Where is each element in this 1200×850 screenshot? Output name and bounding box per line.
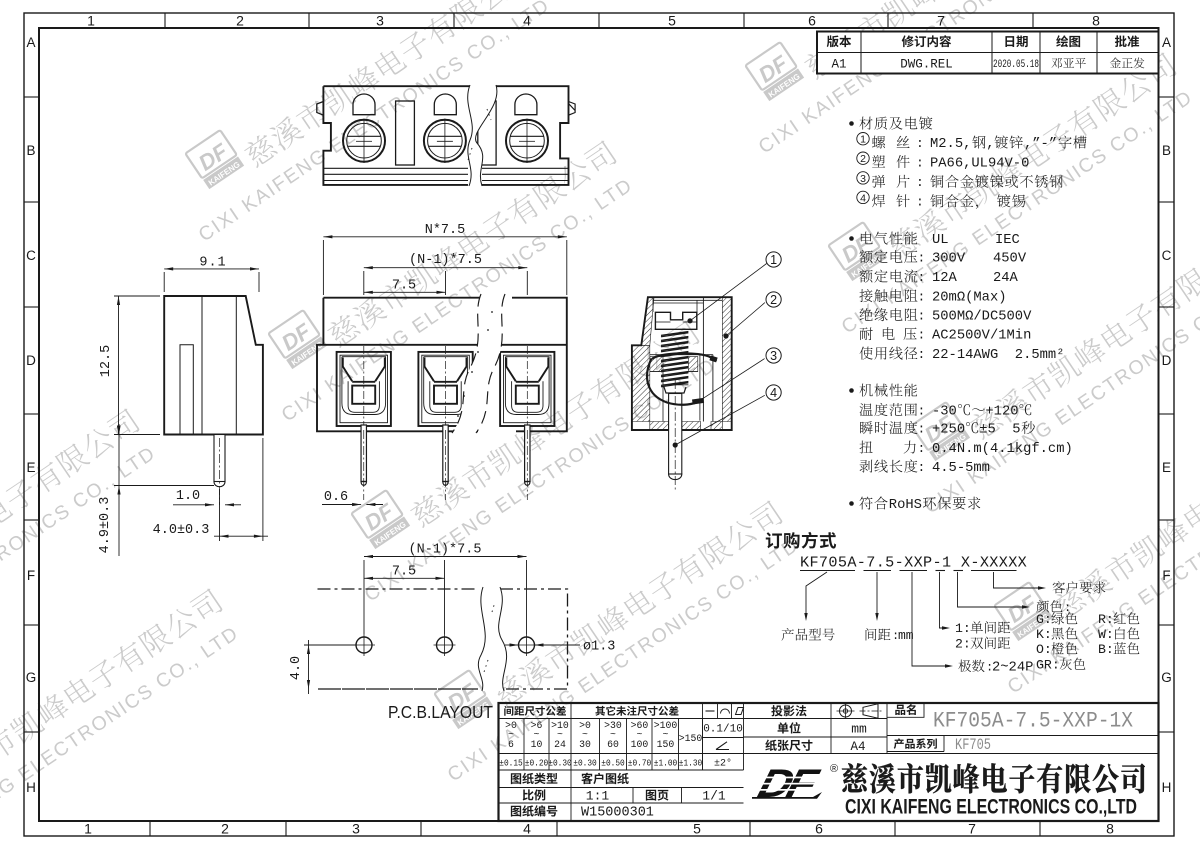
svg-text:H: H — [1162, 780, 1172, 795]
svg-text::: : — [918, 290, 926, 305]
svg-text:F: F — [1162, 568, 1170, 583]
svg-text:30: 30 — [579, 739, 591, 750]
svg-text:0.1/10: 0.1/10 — [703, 724, 743, 736]
svg-text:G:: G: — [1036, 612, 1052, 627]
svg-text:,”-”: ,”-” — [1024, 136, 1057, 152]
svg-text:E: E — [1162, 460, 1171, 475]
svg-text:mm: mm — [898, 628, 914, 643]
svg-text:±1.00: ±1.00 — [654, 757, 678, 768]
svg-text:ø1.3: ø1.3 — [583, 640, 615, 655]
svg-text:+120: +120 — [985, 405, 1018, 420]
svg-text:10: 10 — [531, 739, 543, 750]
svg-text:1:1: 1:1 — [586, 788, 610, 803]
svg-text:7: 7 — [968, 821, 976, 837]
svg-text:±0.30: ±0.30 — [573, 757, 597, 768]
svg-text:±1.30: ±1.30 — [679, 757, 703, 768]
svg-text:1: 1 — [87, 13, 95, 29]
svg-text:6: 6 — [808, 13, 816, 29]
svg-text:7.5: 7.5 — [392, 565, 416, 580]
svg-text:±5 5: ±5 5 — [979, 423, 1020, 438]
svg-text:DWG.REL: DWG.REL — [900, 58, 953, 72]
svg-text:4: 4 — [770, 386, 777, 400]
svg-text:-30: -30 — [932, 405, 957, 420]
svg-text:O:: O: — [1036, 642, 1052, 657]
svg-text::: : — [918, 404, 926, 419]
svg-text:±0.70: ±0.70 — [628, 757, 652, 768]
svg-text:±0.20: ±0.20 — [525, 757, 549, 768]
svg-text:4: 4 — [523, 13, 531, 29]
svg-text:A1: A1 — [831, 58, 846, 72]
svg-text:G: G — [1161, 670, 1172, 685]
svg-text:300V: 300V — [932, 252, 966, 267]
svg-text:H: H — [26, 780, 36, 795]
svg-text:P.C.B.LAYOUT: P.C.B.LAYOUT — [388, 702, 493, 722]
svg-text::: : — [918, 270, 926, 285]
svg-text:2: 2 — [221, 821, 229, 837]
svg-text::: : — [918, 347, 926, 362]
svg-text:®: ® — [830, 763, 838, 775]
svg-text:1: 1 — [84, 821, 92, 837]
svg-text:E: E — [26, 460, 35, 475]
svg-text:7.5: 7.5 — [392, 279, 416, 294]
svg-text::: : — [918, 328, 926, 343]
svg-text:D: D — [1162, 353, 1172, 368]
svg-text:0.6: 0.6 — [324, 490, 348, 505]
svg-text:2:: 2: — [955, 637, 971, 652]
svg-text:9.1: 9.1 — [199, 256, 226, 271]
svg-text:R:: R: — [1098, 612, 1114, 627]
svg-text::: : — [918, 441, 926, 456]
svg-text:A4: A4 — [850, 740, 865, 754]
svg-text:>150: >150 — [679, 733, 703, 744]
svg-text:2~24P: 2~24P — [992, 661, 1033, 676]
svg-text:5: 5 — [668, 13, 676, 29]
svg-text:1: 1 — [770, 253, 777, 267]
svg-text:150: 150 — [657, 739, 675, 750]
svg-text:K:: K: — [1036, 627, 1052, 642]
svg-text:RoHS: RoHS — [889, 498, 922, 513]
svg-text:4.0±0.3: 4.0±0.3 — [153, 523, 210, 538]
svg-text:7: 7 — [937, 13, 945, 29]
svg-text:+250: +250 — [932, 423, 965, 438]
svg-text:3: 3 — [860, 173, 866, 185]
svg-text:8: 8 — [1092, 13, 1100, 29]
svg-text:8: 8 — [1106, 821, 1114, 837]
svg-text:mm: mm — [851, 722, 867, 737]
svg-text:4.0: 4.0 — [289, 656, 304, 680]
svg-text:1/1: 1/1 — [702, 788, 726, 803]
svg-text:B: B — [26, 143, 35, 158]
svg-text:1.0: 1.0 — [176, 489, 200, 504]
svg-text:3: 3 — [376, 13, 384, 29]
svg-text:(N-1)*7.5: (N-1)*7.5 — [409, 253, 482, 268]
svg-text::: : — [918, 309, 926, 324]
svg-text:IEC: IEC — [995, 233, 1020, 248]
svg-text:W:: W: — [1098, 627, 1114, 642]
svg-text::: : — [916, 195, 924, 210]
svg-text:2: 2 — [770, 293, 777, 307]
svg-text:PA66,UL94V-0: PA66,UL94V-0 — [930, 157, 1029, 172]
svg-text:UL: UL — [932, 233, 949, 248]
svg-text:4: 4 — [860, 192, 866, 204]
svg-text:D: D — [26, 353, 36, 368]
svg-text:2020.05.18: 2020.05.18 — [993, 59, 1039, 71]
svg-text:450V: 450V — [993, 252, 1027, 267]
svg-text:±0.15: ±0.15 — [499, 757, 523, 768]
svg-text::: : — [918, 422, 926, 437]
svg-text:500MΩ/DC500V: 500MΩ/DC500V — [932, 309, 1032, 325]
svg-text:B:: B: — [1098, 642, 1114, 657]
svg-text:6: 6 — [815, 821, 823, 837]
svg-text::: : — [916, 175, 924, 190]
svg-text:KF705A-7.5-XXP-1X: KF705A-7.5-XXP-1X — [933, 709, 1133, 734]
svg-text:3: 3 — [770, 349, 777, 363]
svg-text:12.5: 12.5 — [99, 345, 114, 377]
svg-text:C: C — [1162, 248, 1172, 263]
svg-text:KF705A-7.5-XXP-1 X-XXXXX: KF705A-7.5-XXP-1 X-XXXXX — [800, 554, 1027, 572]
svg-text:±2°: ±2° — [714, 758, 732, 770]
svg-text:1:: 1: — [955, 621, 971, 636]
svg-text:1: 1 — [860, 134, 866, 146]
svg-text:24A: 24A — [993, 271, 1019, 286]
svg-text:0.4N.m(4.1kgf.cm): 0.4N.m(4.1kgf.cm) — [932, 441, 1073, 457]
svg-text:B: B — [1162, 143, 1171, 158]
svg-text:22-14AWG 2.5mm²: 22-14AWG 2.5mm² — [932, 348, 1064, 363]
svg-text:3: 3 — [352, 821, 360, 837]
svg-text:4: 4 — [523, 821, 531, 837]
svg-text:4.9±0.3: 4.9±0.3 — [98, 497, 113, 554]
svg-text:±0.50: ±0.50 — [601, 757, 625, 768]
svg-text:2: 2 — [860, 153, 866, 165]
svg-text:,: , — [986, 137, 994, 152]
svg-text::: : — [916, 136, 924, 151]
svg-text:GR:: GR: — [1036, 658, 1060, 673]
svg-text:60: 60 — [607, 739, 619, 750]
svg-text:G: G — [26, 670, 37, 685]
svg-text:2: 2 — [236, 13, 244, 29]
svg-text:CIXI KAIFENG ELECTRONICS CO.,L: CIXI KAIFENG ELECTRONICS CO.,LTD — [845, 796, 1137, 819]
svg-text:4.5-5mm: 4.5-5mm — [932, 461, 990, 476]
svg-text:5: 5 — [693, 821, 701, 837]
svg-text:N*7.5: N*7.5 — [425, 223, 466, 238]
svg-text:6: 6 — [508, 739, 514, 750]
svg-text:A: A — [1162, 35, 1171, 50]
svg-text:100: 100 — [631, 739, 649, 750]
svg-text::: : — [918, 460, 926, 475]
svg-text:AC2500V/1Min: AC2500V/1Min — [932, 328, 1031, 344]
svg-text::: : — [918, 251, 926, 266]
svg-text:M2.5,: M2.5, — [930, 137, 971, 152]
svg-text:A: A — [26, 35, 35, 50]
svg-text:20mΩ(Max): 20mΩ(Max) — [932, 290, 1007, 306]
svg-text:(N-1)*7.5: (N-1)*7.5 — [409, 543, 482, 558]
svg-text:±0.30: ±0.30 — [548, 757, 572, 768]
svg-text:KF705: KF705 — [955, 736, 991, 754]
svg-text:12A: 12A — [932, 271, 958, 286]
svg-text:24: 24 — [554, 739, 566, 750]
svg-text:F: F — [27, 568, 35, 583]
svg-text:C: C — [26, 248, 36, 263]
svg-text::: : — [916, 156, 924, 171]
svg-text::: : — [1064, 601, 1071, 615]
svg-text:W15000301: W15000301 — [581, 806, 654, 821]
